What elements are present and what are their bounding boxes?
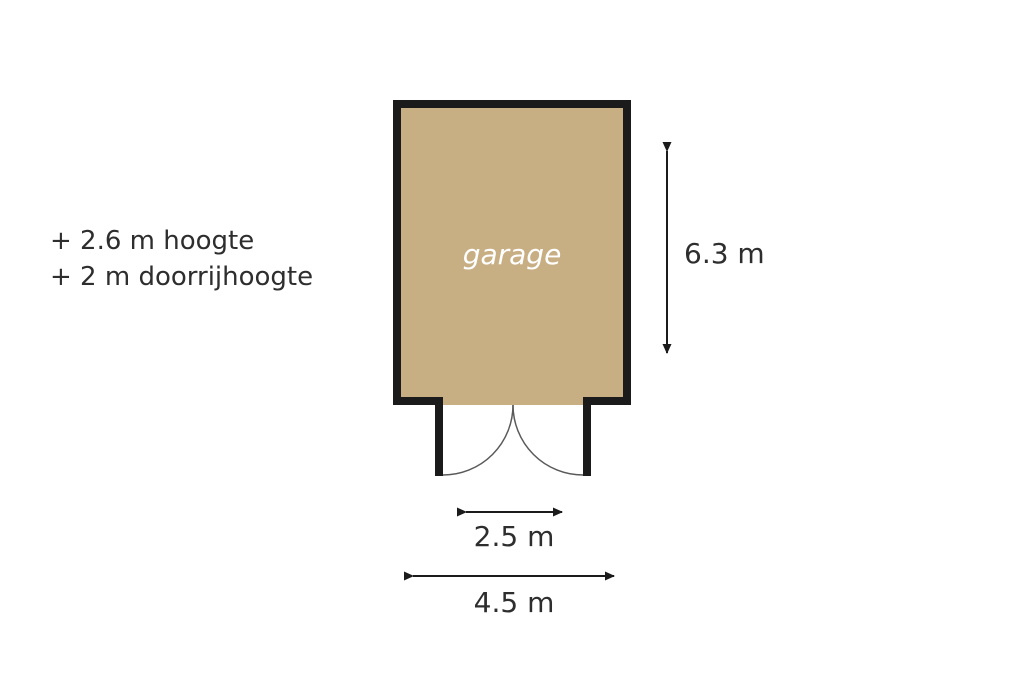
annotation-line-hoogte: + 2.6 m hoogte <box>50 226 254 256</box>
height-dimension-label: 6.3 m <box>684 237 765 270</box>
room-label: garage <box>463 238 562 271</box>
door-width-dimension-label: 2.5 m <box>474 520 555 553</box>
floorplan-canvas: garage 6.3 m 2.5 m 4.5 m + 2.6 m hoogte … <box>0 0 1024 683</box>
wall-left <box>393 100 401 405</box>
door-jamb-right <box>583 397 591 476</box>
door-swing-arc-right <box>513 405 583 475</box>
wall-top <box>393 100 631 108</box>
door-jamb-left <box>435 397 443 476</box>
garage-door-swings <box>443 405 583 475</box>
wall-right <box>623 100 631 405</box>
annotation-line-doorrijhoogte: + 2 m doorrijhoogte <box>50 262 313 292</box>
height-annotations: + 2.6 m hoogte + 2 m doorrijhoogte <box>50 226 313 292</box>
door-swing-arc-left <box>443 405 513 475</box>
width-dimension-label: 4.5 m <box>474 586 555 619</box>
